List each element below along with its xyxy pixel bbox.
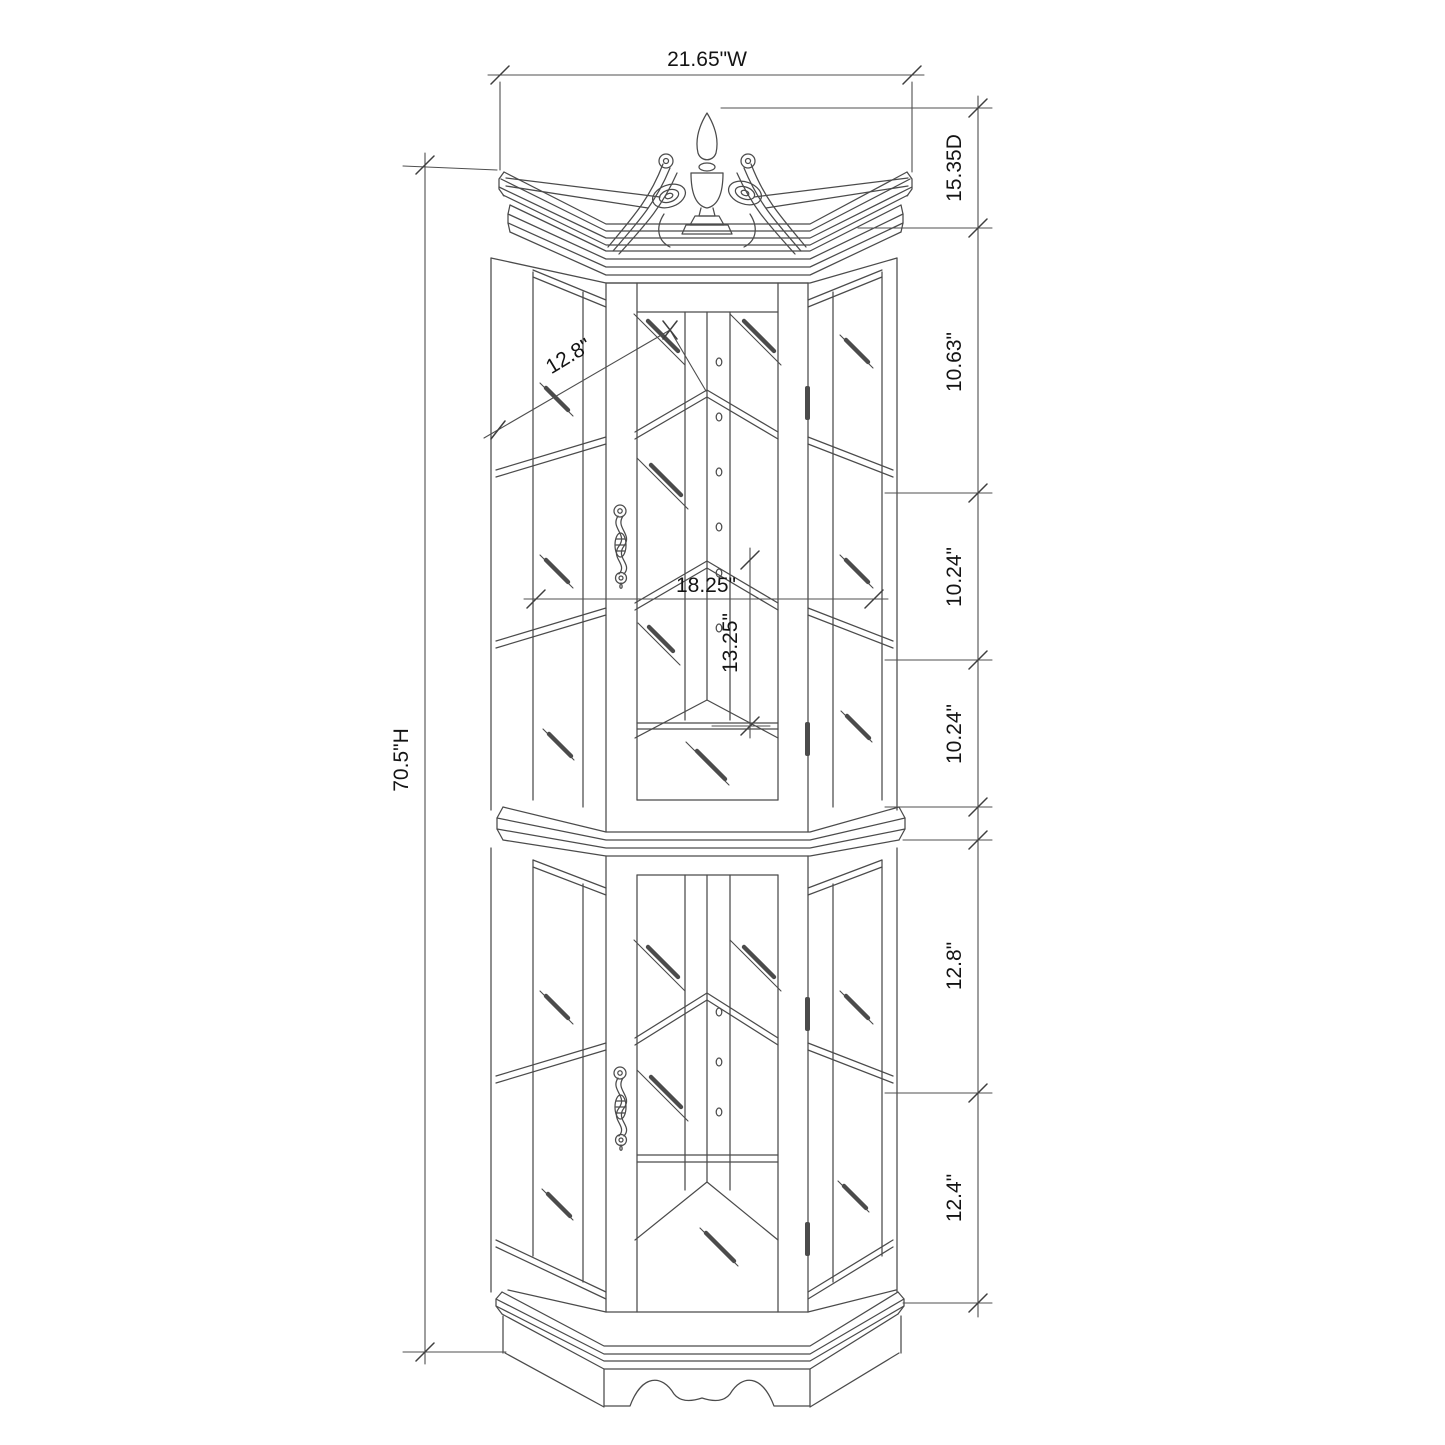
pediment-roof-right bbox=[754, 178, 908, 197]
cabinet-outline bbox=[491, 113, 912, 1407]
dim-label-overall-width: 21.65"W bbox=[667, 48, 747, 71]
dim-label-overall-height: 70.5"H bbox=[390, 728, 413, 792]
upper-door-handle[interactable] bbox=[614, 505, 627, 588]
dim-label-segment-4: 12.8" bbox=[943, 942, 966, 990]
back-post-lower bbox=[685, 875, 730, 1190]
crown-right-cap bbox=[907, 172, 912, 196]
waist-molding bbox=[497, 807, 905, 856]
dim-label-shelf-diagonal: 12.8" bbox=[542, 334, 595, 379]
finial-urn bbox=[649, 113, 764, 234]
dim-label-segment-1: 10.63" bbox=[943, 332, 966, 392]
dim-label-segment-2: 10.24" bbox=[943, 547, 966, 607]
technical-drawing-page: 21.65"W 15.35D 70.5"H 12.8" 18.25" 13.25… bbox=[0, 0, 1445, 1445]
lower-door-handle[interactable] bbox=[614, 1067, 627, 1150]
dim-label-interior-width: 18.25" bbox=[676, 574, 736, 597]
pediment-roof-left bbox=[506, 178, 660, 197]
cabinet-elevation-drawing: 21.65"W 15.35D 70.5"H 12.8" 18.25" 13.25… bbox=[0, 0, 1445, 1445]
dim-label-segment-3: 10.24" bbox=[943, 704, 966, 764]
dim-label-overall-depth: 15.35D bbox=[943, 134, 966, 202]
dim-label-segment-5: 12.4" bbox=[943, 1174, 966, 1222]
pediment-scrolls bbox=[608, 154, 806, 254]
crown-left-cap bbox=[499, 172, 504, 196]
dim-label-glass-height: 13.25" bbox=[719, 613, 742, 673]
scalloped-apron bbox=[604, 1380, 810, 1406]
